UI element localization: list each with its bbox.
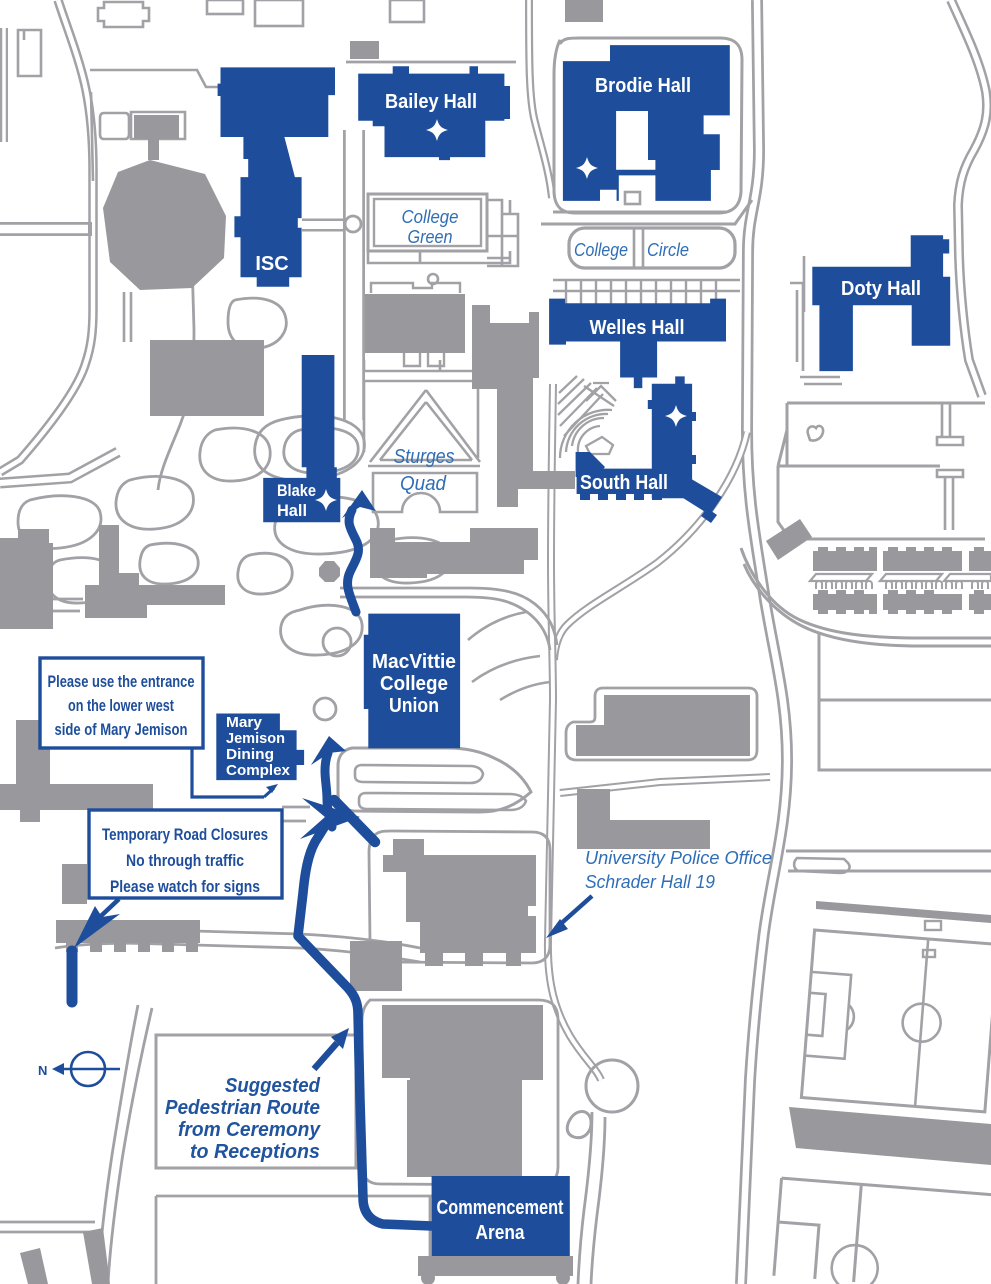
svg-text:No through traffic: No through traffic	[126, 851, 244, 870]
svg-text:N: N	[38, 1063, 47, 1078]
svg-text:Complex: Complex	[226, 763, 290, 779]
svg-text:Please watch for signs: Please watch for signs	[110, 877, 260, 896]
svg-text:University Police Office: University Police Office	[585, 848, 772, 868]
svg-text:Temporary Road Closures: Temporary Road Closures	[102, 825, 268, 844]
svg-text:Dining: Dining	[226, 747, 274, 763]
svg-text:Hall: Hall	[277, 501, 307, 520]
svg-text:Brodie Hall: Brodie Hall	[595, 75, 691, 97]
svg-text:Commencement: Commencement	[437, 1197, 564, 1219]
svg-text:Mary: Mary	[226, 715, 262, 731]
svg-text:on the lower west: on the lower west	[68, 696, 174, 715]
svg-text:South Hall: South Hall	[580, 472, 668, 494]
svg-text:MacVittie: MacVittie	[372, 651, 456, 673]
svg-text:Sturges: Sturges	[394, 446, 455, 468]
svg-text:Blake: Blake	[277, 481, 316, 500]
svg-text:College: College	[574, 240, 628, 260]
svg-text:Suggested: Suggested	[225, 1075, 321, 1097]
svg-text:Bailey Hall: Bailey Hall	[385, 91, 477, 113]
svg-text:Green: Green	[408, 227, 453, 247]
svg-text:Pedestrian Route: Pedestrian Route	[165, 1097, 320, 1119]
svg-text:College: College	[380, 673, 448, 695]
svg-text:to Receptions: to Receptions	[190, 1141, 320, 1163]
svg-text:College: College	[402, 207, 459, 227]
svg-text:Arena: Arena	[476, 1222, 526, 1244]
svg-text:from Ceremony: from Ceremony	[178, 1119, 321, 1141]
svg-text:ISC: ISC	[255, 253, 288, 275]
svg-text:Circle: Circle	[647, 240, 689, 260]
svg-text:Doty Hall: Doty Hall	[841, 278, 921, 300]
svg-text:Welles Hall: Welles Hall	[590, 317, 685, 339]
svg-text:Jemison: Jemison	[226, 731, 285, 747]
svg-text:Quad: Quad	[400, 473, 447, 495]
svg-text:Union: Union	[389, 695, 439, 717]
svg-text:Schrader Hall 19: Schrader Hall 19	[585, 872, 715, 892]
svg-text:Please use the entrance: Please use the entrance	[48, 672, 195, 691]
svg-text:side of Mary Jemison: side of Mary Jemison	[55, 720, 188, 739]
